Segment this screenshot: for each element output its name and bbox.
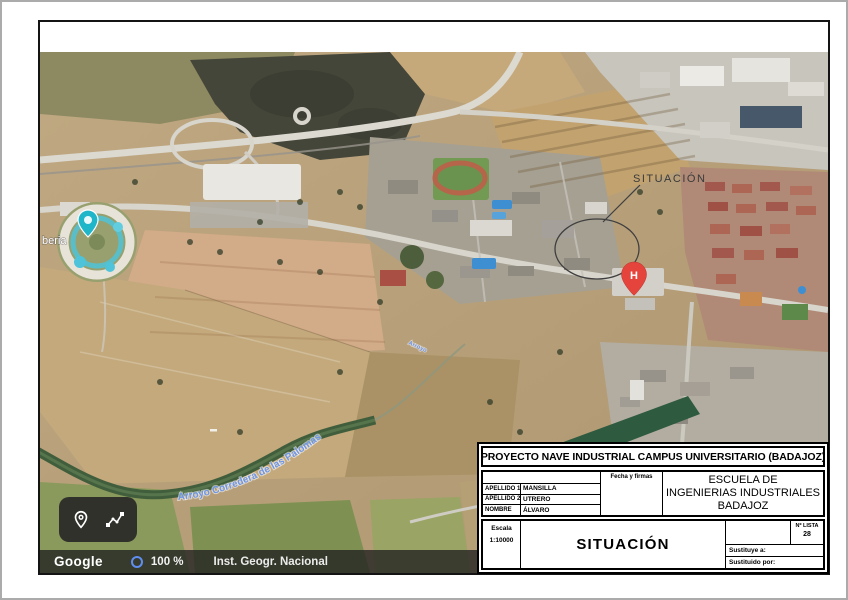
sheet-title: SITUACIÓN (521, 521, 725, 568)
escala-label: Escala (491, 525, 512, 532)
author-table: APELLIDO 1 MANSILLA APELLIDO 2 UTRERO NO… (481, 470, 825, 517)
nombre-label: NOMBRE (483, 504, 521, 515)
n-lista-value: 28 (803, 531, 811, 538)
n-lista-cell: Nº LISTA 28 (790, 521, 823, 544)
escala-cell: Escala 1:10000 (483, 521, 521, 568)
measure-path-icon (104, 509, 126, 531)
project-title: PROYECTO NAVE INDUSTRIAL CAMPUS UNIVERSI… (481, 446, 825, 467)
author-header-cell (483, 472, 601, 483)
nombre-value: ÁLVARO (521, 504, 601, 515)
location-pin-icon (70, 509, 92, 531)
measure-button[interactable] (102, 507, 128, 533)
apellido1-value: MANSILLA (521, 483, 601, 494)
hospital-pin-letter: H (630, 270, 638, 282)
drawing-sheet: Arroyo Corredera de las Palomas Arroyo b… (0, 0, 848, 600)
sustituido-cell: Sustituido por: (726, 556, 823, 568)
apellido1-label: APELLIDO 1 (483, 483, 521, 494)
fecha-firmas-cell: Fecha y firmas (601, 472, 663, 515)
title-block: PROYECTO NAVE INDUSTRIAL CAMPUS UNIVERSI… (477, 442, 829, 574)
apellido2-label: APELLIDO 2 (483, 494, 521, 505)
location-pin-button[interactable] (68, 507, 94, 533)
zoom-ring-icon (131, 556, 143, 568)
zoom-percent: 100 % (151, 556, 184, 568)
empty-cell (726, 521, 790, 544)
waterpark-label: beria (42, 235, 67, 247)
escala-value: 1:10000 (490, 537, 514, 544)
map-controls (59, 497, 137, 542)
school-line1: ESCUELA DE (708, 474, 777, 487)
apellido2-value: UTRERO (521, 494, 601, 505)
school-line2: INGENIERIAS INDUSTRIALES (666, 487, 820, 500)
google-logo: Google (54, 554, 103, 569)
situacion-annotation-label: SITUACIÓN (633, 172, 706, 185)
imagery-source: Inst. Geogr. Nacional (214, 556, 328, 568)
school-line3: BADAJOZ (718, 500, 769, 513)
sustituye-cell: Sustituye a: (726, 544, 823, 556)
waterpark (57, 202, 137, 282)
school-cell: ESCUELA DE INGENIERIAS INDUSTRIALES BADA… (663, 472, 823, 515)
n-lista-label: Nº LISTA (796, 523, 819, 529)
title-block-bottom: Escala 1:10000 SITUACIÓN Nº LISTA 28 Sus… (481, 519, 825, 570)
